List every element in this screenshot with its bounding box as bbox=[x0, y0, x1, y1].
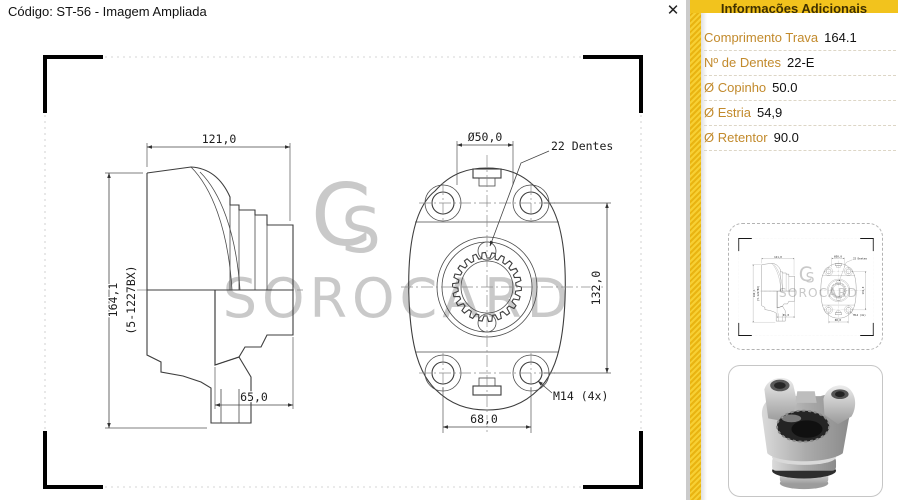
sidebar-accent-strip bbox=[690, 0, 701, 500]
spec-row-copinho: Ø Copinho50.0 bbox=[704, 76, 896, 101]
spec-row-dentes: Nº de Dentes22-E bbox=[704, 51, 896, 76]
spec-value: 22-E bbox=[787, 55, 814, 70]
sidebar-header-label: Informações Adicionais bbox=[721, 1, 867, 13]
spec-label: Nº de Dentes bbox=[704, 55, 781, 70]
spec-label: Comprimento Trava bbox=[704, 30, 818, 45]
viewer-window: C S SOROCARD bbox=[0, 0, 898, 500]
spec-value: 54,9 bbox=[757, 105, 782, 120]
drawing-thumbnail-image bbox=[738, 238, 874, 336]
close-icon[interactable]: ✕ bbox=[662, 0, 684, 22]
spec-row-estria: Ø Estria54,9 bbox=[704, 101, 896, 126]
spec-value: 50.0 bbox=[772, 80, 797, 95]
sidebar-header: Informações Adicionais bbox=[690, 0, 898, 13]
spec-label: Ø Estria bbox=[704, 105, 751, 120]
spec-value: 90.0 bbox=[774, 130, 799, 145]
drawing-thumbnail[interactable] bbox=[728, 223, 883, 350]
image-viewer-panel: Código: ST-56 - Imagem Ampliada ✕ bbox=[0, 0, 686, 500]
part-photo-image bbox=[733, 370, 879, 492]
technical-drawing bbox=[43, 55, 643, 489]
sidebar: Informações Adicionais Comprimento Trava… bbox=[686, 0, 898, 500]
spec-list: Comprimento Trava164.1 Nº de Dentes22-E … bbox=[704, 13, 896, 151]
window-title: Código: ST-56 - Imagem Ampliada bbox=[8, 4, 207, 19]
spec-value: 164.1 bbox=[824, 30, 857, 45]
yoke-photo-art bbox=[761, 378, 854, 489]
spec-label: Ø Copinho bbox=[704, 80, 766, 95]
spec-row-retentor: Ø Retentor90.0 bbox=[704, 126, 896, 151]
spec-label: Ø Retentor bbox=[704, 130, 768, 145]
spec-row-comprimento: Comprimento Trava164.1 bbox=[704, 26, 896, 51]
part-photo[interactable] bbox=[728, 365, 883, 497]
